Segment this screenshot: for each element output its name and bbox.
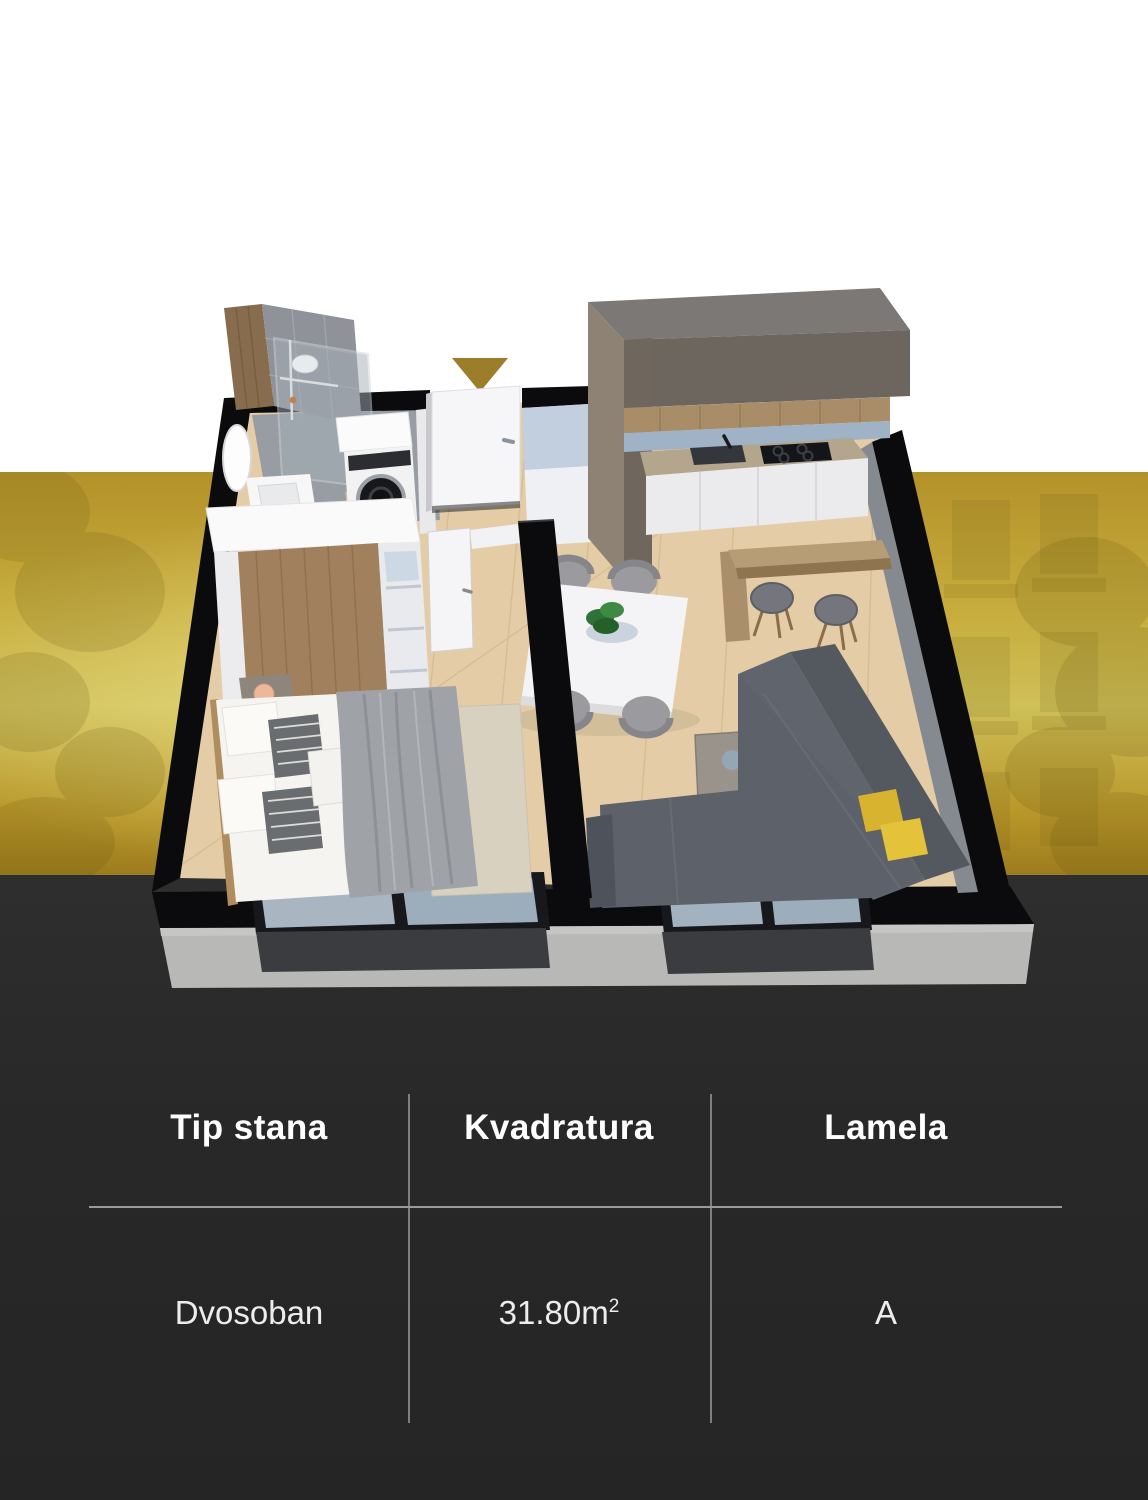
wardrobe <box>206 498 430 717</box>
bathroom-cabinet <box>336 412 412 452</box>
yellow-pillow <box>880 818 928 861</box>
dining-chair <box>622 696 670 735</box>
floor-plan-3d-render <box>140 280 1050 990</box>
kitchen-pantry-column <box>588 302 624 580</box>
door-handle <box>464 590 471 592</box>
door-handle <box>504 440 513 442</box>
kitchen-upper-cabinets <box>624 330 910 408</box>
page: Tip stana Kvadratura Lamela Dvosoban 31.… <box>0 0 1148 1500</box>
bed <box>210 686 478 906</box>
entrance-door <box>432 386 520 510</box>
kitchen-sink <box>690 445 746 465</box>
duvet <box>336 686 478 898</box>
